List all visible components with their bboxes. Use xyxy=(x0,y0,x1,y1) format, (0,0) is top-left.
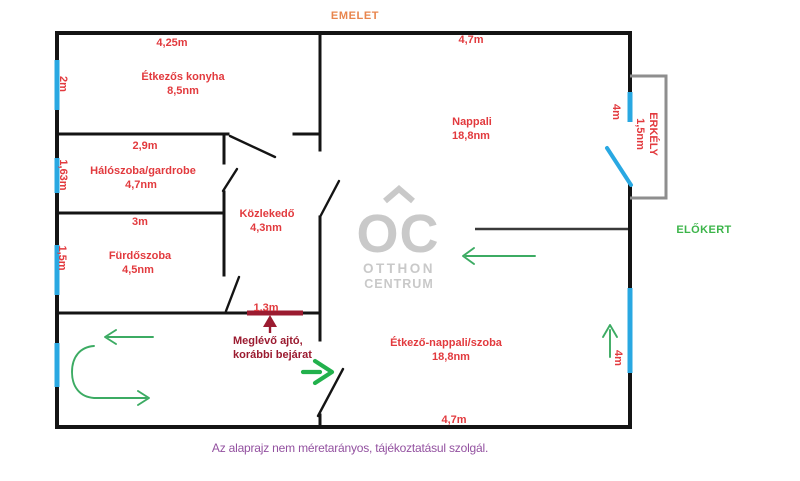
room-bedroom-area: 4,7nm xyxy=(125,179,157,191)
stairs-lower-right xyxy=(587,282,630,352)
former-door-note: Meglévő ajtó, korábbi bejárat xyxy=(233,335,312,361)
room-hall-name: Közlekedő xyxy=(239,208,294,220)
room-living-area: 18,8nm xyxy=(452,130,490,142)
front-garden-label: ELŐKERT xyxy=(676,223,731,236)
left-stairs-up-arrow-icon xyxy=(72,330,153,405)
up-arrow-icon xyxy=(263,315,277,327)
bathroom-door-icon xyxy=(226,277,239,311)
dim-bathroom-window: 1,5m xyxy=(56,245,68,270)
room-dining-area: 18,8nm xyxy=(432,351,470,363)
room-balcony-label: ERKÉLY 1,5nm xyxy=(634,112,660,156)
dim-dining-window: 4m xyxy=(612,350,624,366)
entrance-arrow-icon xyxy=(303,361,332,383)
room-bathroom-area: 4,5nm xyxy=(122,264,154,276)
living-door-icon xyxy=(320,181,339,217)
room-bedroom-name: Hálószoba/gardrobe xyxy=(90,165,196,177)
floor-plan: OC OTTHON CENTRUM xyxy=(0,0,800,481)
disclaimer: Az alaprajz nem méretarányos, tájékoztat… xyxy=(212,441,488,455)
balcony-door-icon xyxy=(607,148,631,185)
room-kitchen-name: Étkezős konyha xyxy=(141,70,225,83)
dim-living-width: 4,7m xyxy=(458,34,483,46)
watermark-name1: OTTHON xyxy=(363,261,435,276)
dim-dining-width: 4,7m xyxy=(441,414,466,426)
dim-bedroom-window: 1,63m xyxy=(57,159,69,190)
room-bathroom-name: Fürdőszoba xyxy=(109,250,172,262)
dim-balcony-window: 4m xyxy=(610,104,622,120)
dim-kitchen-width: 4,25m xyxy=(156,37,187,49)
watermark-name2: CENTRUM xyxy=(364,277,434,291)
dim-former-door: 1.3m xyxy=(253,302,278,314)
dim-bedroom-width: 2,9m xyxy=(132,140,157,152)
stairs-bottom-left xyxy=(87,314,225,426)
room-balcony-area: 1,5nm xyxy=(634,118,646,150)
note-line1: Meglévő ajtó, xyxy=(233,335,303,347)
bedroom-door-icon xyxy=(223,169,237,191)
dim-kitchen-window: 2m xyxy=(57,76,69,92)
page-title: EMELET xyxy=(331,10,379,22)
room-hall-area: 4,3nm xyxy=(250,222,282,234)
otthon-centrum-watermark: OC OTTHON CENTRUM xyxy=(357,189,440,291)
watermark-logo: OC xyxy=(357,204,440,264)
room-kitchen-area: 8,5nm xyxy=(167,85,199,97)
dining-door-icon xyxy=(318,369,343,416)
room-living-name: Nappali xyxy=(452,116,492,128)
room-dining-name: Étkező-nappali/szoba xyxy=(390,336,503,349)
floor-plan-svg: OC OTTHON CENTRUM xyxy=(0,0,800,481)
upper-stairs-arrow-icon xyxy=(463,248,535,264)
former-door-marker xyxy=(247,313,303,333)
dim-bathroom-width: 3m xyxy=(132,216,148,228)
watermark-hat-icon xyxy=(385,189,413,201)
room-balcony-name: ERKÉLY xyxy=(647,112,660,156)
note-line2: korábbi bejárat xyxy=(233,349,312,361)
door-leaves xyxy=(223,136,343,416)
kitchen-door-icon xyxy=(230,136,275,157)
